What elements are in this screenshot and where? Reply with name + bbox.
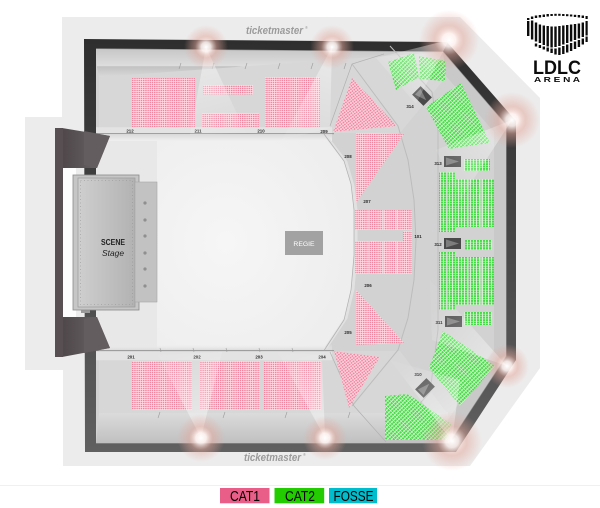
svg-text:REGIE: REGIE (293, 241, 315, 248)
svg-text:313: 313 (434, 161, 442, 166)
svg-text:314: 314 (406, 104, 414, 109)
svg-text:SCENE: SCENE (101, 238, 126, 247)
svg-text:210: 210 (257, 129, 265, 134)
svg-text:ticketmaster: ticketmaster (246, 25, 304, 37)
svg-text:201: 201 (127, 354, 135, 359)
svg-text:ticketmaster: ticketmaster (244, 452, 302, 464)
svg-text:CAT2: CAT2 (285, 488, 315, 505)
svg-text:312: 312 (434, 242, 442, 247)
svg-text:203: 203 (255, 354, 263, 359)
svg-text:208: 208 (344, 154, 352, 159)
svg-text:101: 101 (414, 234, 422, 239)
svg-text:205: 205 (344, 330, 352, 335)
svg-text:207: 207 (363, 199, 371, 204)
svg-text:CAT1: CAT1 (230, 488, 260, 505)
svg-text:Stage: Stage (102, 248, 124, 258)
svg-text:212: 212 (126, 129, 134, 134)
svg-text:®: ® (303, 452, 306, 457)
svg-text:FOSSE: FOSSE (334, 488, 374, 505)
svg-text:206: 206 (364, 283, 372, 288)
svg-text:®: ® (305, 25, 308, 30)
svg-text:A R E N A: A R E N A (534, 75, 581, 84)
